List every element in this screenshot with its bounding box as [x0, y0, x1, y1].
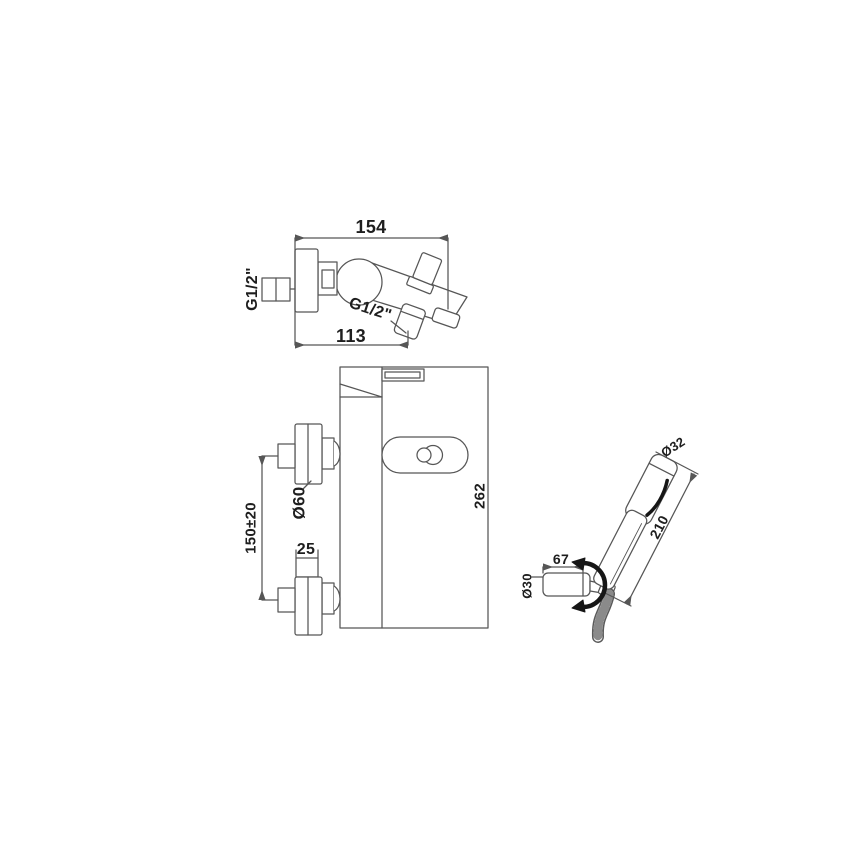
dim-label-67: 67 [553, 552, 569, 566]
upper-union [278, 424, 340, 484]
wall-flange-side [295, 249, 318, 312]
lower-union [278, 550, 340, 635]
dim-label-154: 154 [356, 218, 387, 236]
mixer-body [340, 367, 488, 628]
lower-inlet [278, 588, 295, 612]
dim-label-25: 25 [297, 542, 315, 558]
thread-label-inlet: G1/2" [245, 267, 261, 311]
technical-drawing-canvas: 154 G1/2" G1/2" 113 262 Ø60 150±20 25 Ø3… [0, 0, 868, 868]
dim-label-d60: Ø60 [291, 486, 308, 519]
drawing-linework [0, 0, 868, 868]
dim-label-d30: Ø30 [521, 573, 534, 598]
dim-label-113: 113 [336, 327, 366, 345]
dim-label-150: 150±20 [244, 502, 259, 554]
hand-shower-set [532, 452, 698, 637]
dim-label-262: 262 [473, 483, 488, 509]
upper-inlet [278, 444, 295, 468]
